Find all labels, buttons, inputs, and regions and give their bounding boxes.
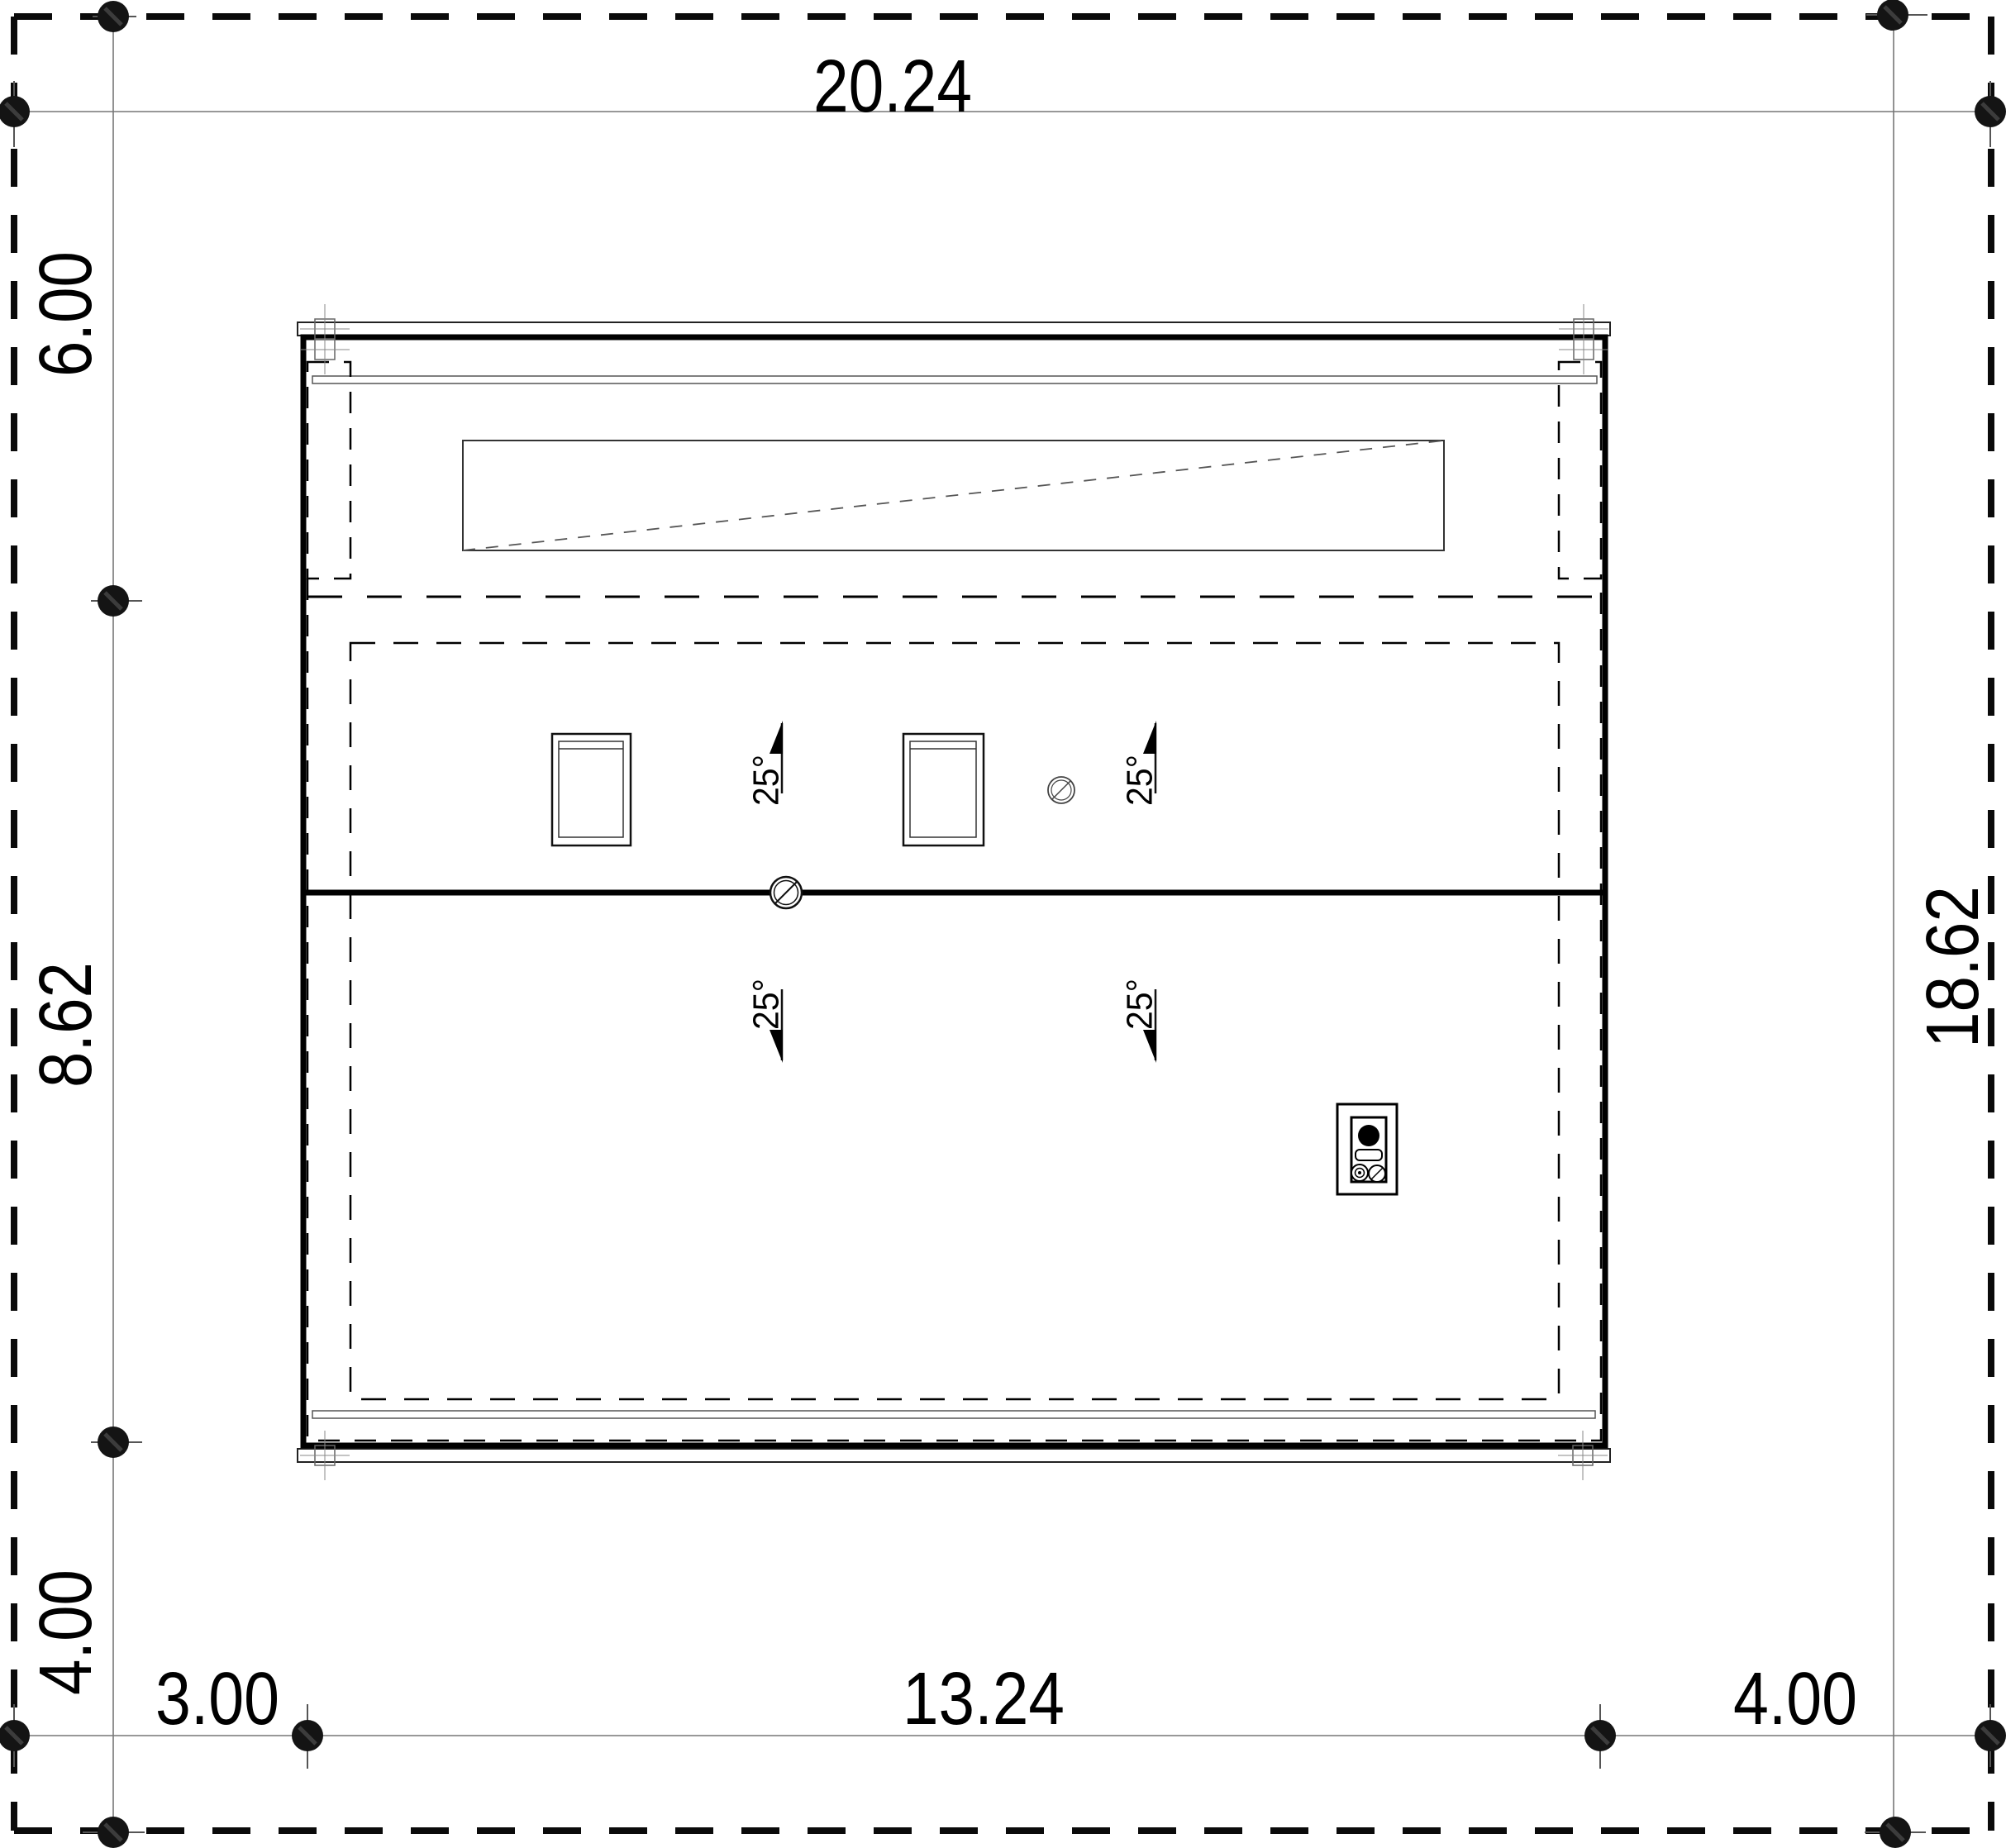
dim-label-left-bottom: 4.00 xyxy=(25,1569,107,1695)
slope-arrow-lower-right: 25° xyxy=(1120,979,1160,1063)
slope-arrow-head xyxy=(770,721,783,754)
survey-marker xyxy=(1975,96,2006,127)
survey-marker xyxy=(1584,1720,1616,1751)
survey-marker xyxy=(1880,1817,1911,1848)
slope-angle-label: 25° xyxy=(746,755,787,806)
unit-dome xyxy=(1358,1125,1379,1146)
slope-angle-label: 25° xyxy=(746,979,787,1030)
dashed-wall-outline xyxy=(307,579,1601,1441)
survey-marker xyxy=(292,1720,323,1751)
slope-angle-label: 25° xyxy=(1120,979,1160,1030)
roof-access-unit xyxy=(1337,1104,1397,1194)
dim-label-bottom-middle: 13.24 xyxy=(903,1658,1065,1741)
vent-symbol-ridge xyxy=(770,877,802,908)
dim-label-left-middle: 8.62 xyxy=(25,962,107,1088)
slope-angle-label: 25° xyxy=(1120,755,1160,806)
chimney-outer xyxy=(903,734,984,845)
dim-label-bottom-right: 4.00 xyxy=(1733,1658,1857,1741)
slope-arrow-upper-right: 25° xyxy=(1120,721,1160,806)
gutter-bottom xyxy=(298,1449,1610,1462)
survey-marker xyxy=(1975,1720,2006,1751)
survey-marker xyxy=(1877,0,1908,31)
gutter-top xyxy=(298,322,1610,336)
dimension-lines xyxy=(14,15,1990,1832)
dashed-band-right xyxy=(1559,362,1601,579)
site-boundary xyxy=(14,17,1991,1831)
chimney-right xyxy=(903,734,984,845)
fascia-bar-top xyxy=(312,376,1597,383)
unit-dial xyxy=(1351,1165,1368,1181)
vent-symbol-roof xyxy=(1048,777,1074,803)
fascia-bar-bottom xyxy=(312,1411,1595,1418)
slope-arrow-lower-left: 25° xyxy=(746,979,787,1063)
slope-arrow-head xyxy=(1143,721,1156,754)
slope-arrow-upper-left: 25° xyxy=(746,721,787,806)
unit-vent-slot xyxy=(1356,1150,1382,1160)
dim-label-right-overall: 18.62 xyxy=(1912,886,1994,1048)
slope-arrow-head xyxy=(770,1030,783,1063)
survey-marker xyxy=(98,1426,129,1458)
dim-label-bottom-left: 3.00 xyxy=(155,1658,279,1741)
survey-marker xyxy=(0,96,30,127)
downspout-symbol xyxy=(300,1431,350,1480)
skylight-panel xyxy=(463,441,1444,550)
survey-marker xyxy=(98,585,129,617)
chimney-left xyxy=(552,734,631,845)
drawing-sheet: 20.24 6.00 8.62 4.00 18.62 3.00 13.24 4.… xyxy=(0,0,2006,1848)
survey-marker xyxy=(98,1817,129,1848)
unit-valve xyxy=(1369,1165,1385,1182)
chimney-outer xyxy=(552,734,631,845)
building: 25° 25° 25° 25° xyxy=(298,304,1610,1480)
slope-arrow-head xyxy=(1143,1030,1156,1063)
survey-marker xyxy=(0,1720,30,1751)
survey-marker xyxy=(98,1,129,32)
roof-plan-svg: 20.24 6.00 8.62 4.00 18.62 3.00 13.24 4.… xyxy=(0,0,2006,1848)
dim-label-left-top: 6.00 xyxy=(25,251,107,377)
dimension-ticks xyxy=(14,15,1990,1832)
dim-label-top-width: 20.24 xyxy=(813,45,972,128)
dashed-band-left xyxy=(307,362,350,579)
